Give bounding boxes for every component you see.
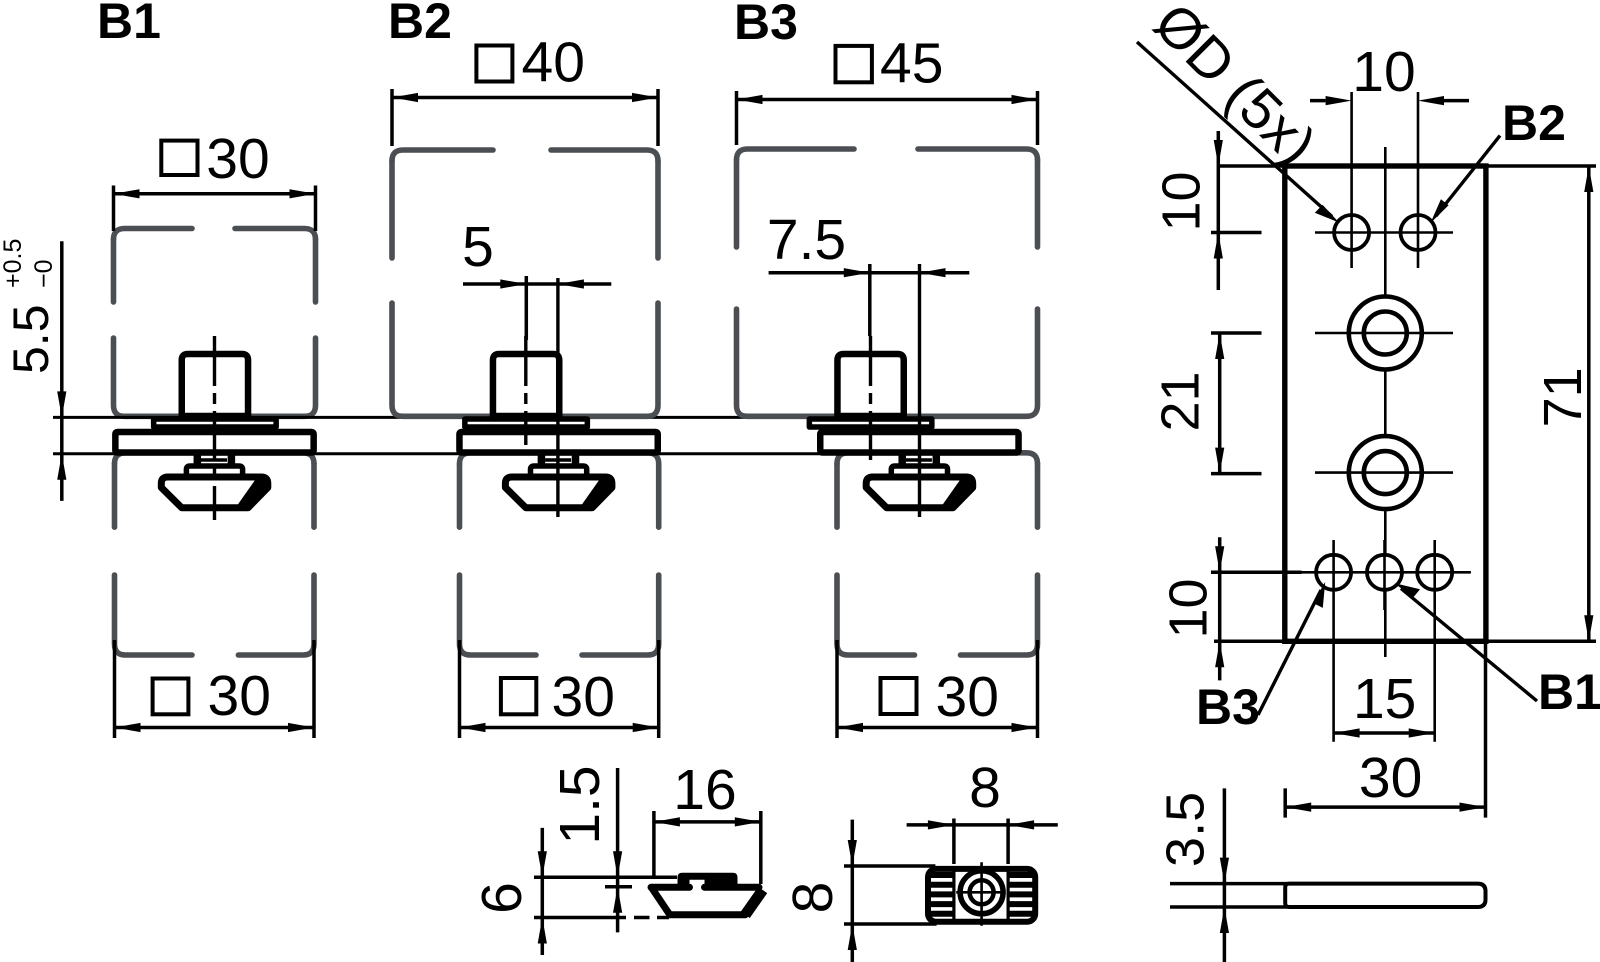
svg-text:5.5: 5.5	[3, 304, 59, 374]
svg-text:15: 15	[1353, 667, 1416, 731]
svg-text:40: 40	[522, 31, 585, 95]
svg-text:30: 30	[206, 127, 269, 191]
svg-text:8: 8	[969, 756, 1001, 820]
svg-text:B2: B2	[1502, 95, 1566, 151]
svg-text:16: 16	[673, 758, 736, 822]
svg-text:10: 10	[1352, 40, 1415, 104]
svg-text:B3: B3	[734, 0, 798, 50]
svg-text:6: 6	[470, 882, 534, 914]
svg-text:7.5: 7.5	[767, 208, 846, 272]
svg-text:−0: −0	[30, 259, 58, 288]
svg-text:30: 30	[936, 665, 999, 729]
svg-text:21: 21	[1150, 371, 1210, 431]
svg-text:B1: B1	[1538, 664, 1600, 720]
svg-text:30: 30	[208, 664, 271, 728]
svg-text:+0.5: +0.5	[0, 239, 27, 288]
svg-text:8: 8	[781, 882, 845, 914]
svg-text:5: 5	[462, 215, 494, 279]
svg-text:1.5: 1.5	[548, 765, 612, 844]
svg-text:10: 10	[1151, 171, 1211, 231]
svg-text:30: 30	[1359, 746, 1422, 810]
svg-text:45: 45	[880, 32, 943, 96]
svg-text:71: 71	[1533, 367, 1593, 427]
svg-text:3.5: 3.5	[1155, 792, 1215, 867]
svg-text:10: 10	[1158, 578, 1218, 638]
svg-text:B3: B3	[1196, 679, 1260, 735]
svg-text:B1: B1	[97, 0, 161, 49]
svg-text:B2: B2	[388, 0, 452, 49]
svg-text:30: 30	[552, 665, 615, 729]
